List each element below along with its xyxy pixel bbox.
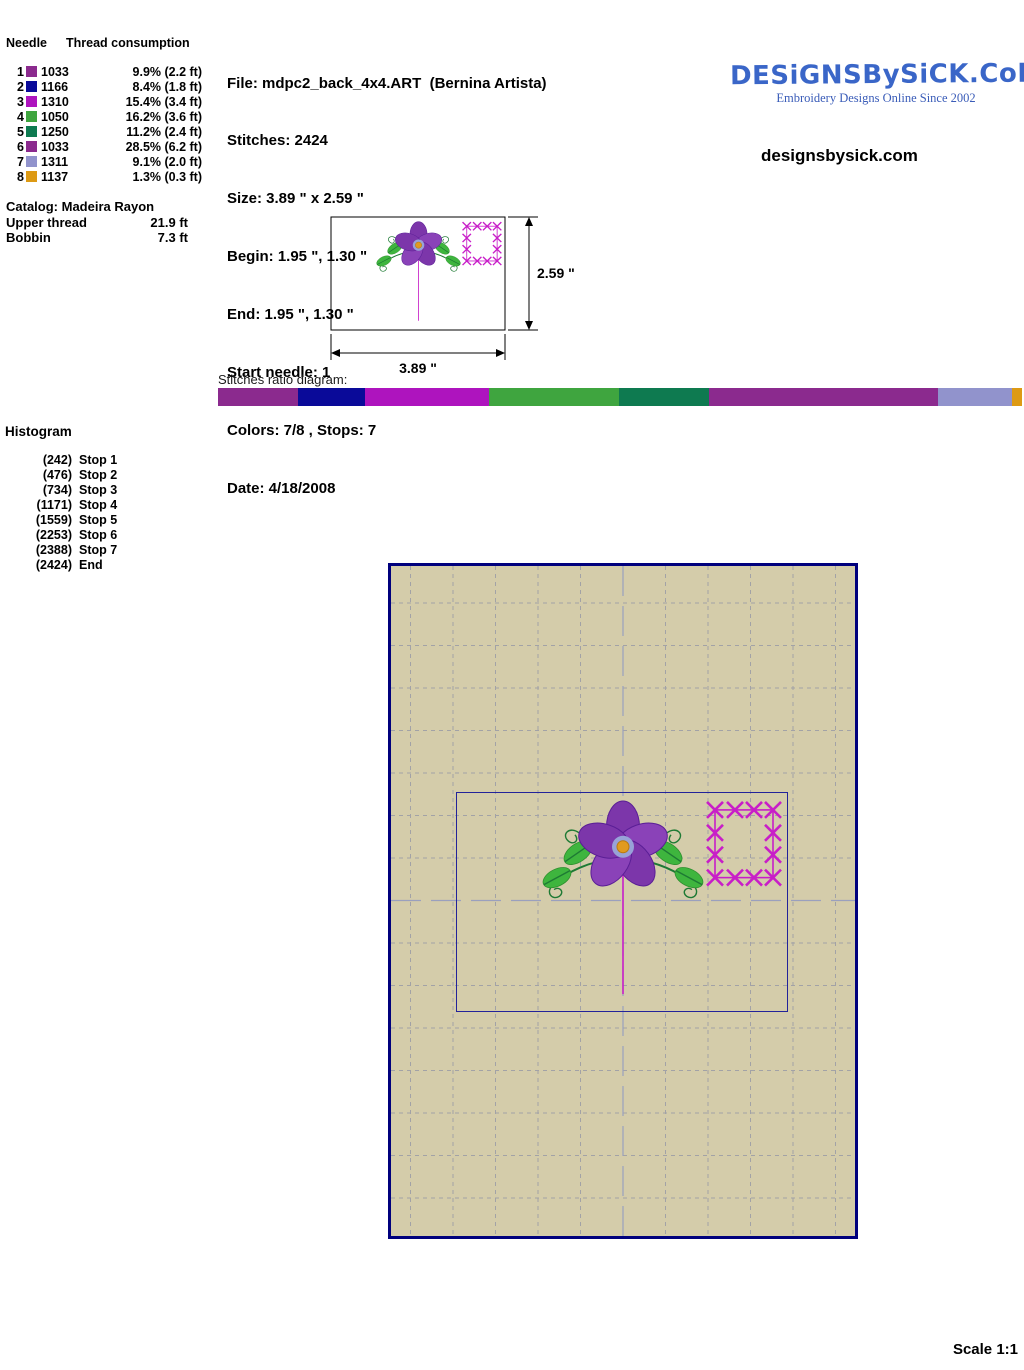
embroidery-design-small <box>375 222 501 321</box>
thread-rows: 1 1033 9.9% (2.2 ft) 2 1166 8.4% (1.8 ft… <box>6 64 202 184</box>
thread-color-swatch <box>26 126 37 137</box>
ratio-segment <box>709 388 938 406</box>
stitch-ratio-label: Stitches ratio diagram: <box>218 372 347 387</box>
histogram-row: (242) Stop 1 <box>18 453 117 468</box>
thread-row: 4 1050 16.2% (3.6 ft) <box>6 109 202 124</box>
thread-code: 1310 <box>41 95 85 109</box>
stop-stitch-count: (734) <box>18 483 72 498</box>
histogram-row: (476) Stop 2 <box>18 468 117 483</box>
histogram-title: Histogram <box>5 424 72 439</box>
thread-color-swatch <box>26 141 37 152</box>
histogram-row: (2253) Stop 6 <box>18 528 117 543</box>
needle-number: 7 <box>6 155 24 169</box>
thread-code: 1250 <box>41 125 85 139</box>
consumption-column-header: Thread consumption <box>66 36 190 50</box>
ratio-segment <box>218 388 298 406</box>
needle-number: 3 <box>6 95 24 109</box>
thread-code: 1166 <box>41 80 85 94</box>
needle-number: 2 <box>6 80 24 94</box>
needle-number: 5 <box>6 125 24 139</box>
scale-label: Scale 1:1 <box>938 1341 1018 1358</box>
colors-stops-line: Colors: 7/8 , Stops: 7 <box>227 421 547 440</box>
stop-stitch-count: (2388) <box>18 543 72 558</box>
stop-stitch-count: (242) <box>18 453 72 468</box>
stop-label: Stop 3 <box>79 483 117 498</box>
thread-row: 6 1033 28.5% (6.2 ft) <box>6 139 202 154</box>
brand-tagline: Embroidery Designs Online Since 2002 <box>730 91 1022 106</box>
hoop-canvas <box>388 563 858 1239</box>
height-dimension <box>508 217 538 330</box>
thread-consumption-panel: Needle Thread consumption 1 1033 9.9% (2… <box>6 36 202 184</box>
bobbin-value: 7.3 ft <box>51 230 188 246</box>
thread-code: 1033 <box>41 65 85 79</box>
stop-label: Stop 7 <box>79 543 117 558</box>
stop-stitch-count: (2424) <box>18 558 72 573</box>
size-line: Size: 3.89 " x 2.59 " <box>227 189 547 208</box>
thread-color-swatch <box>26 111 37 122</box>
ratio-segment <box>1012 388 1022 406</box>
needle-number: 8 <box>6 170 24 184</box>
stop-label: Stop 2 <box>79 468 117 483</box>
upper-thread-label: Upper thread <box>6 215 87 231</box>
thread-usage: 9.1% (2.0 ft) <box>85 155 202 169</box>
thread-color-swatch <box>26 96 37 107</box>
thread-code: 1311 <box>41 155 85 169</box>
stop-stitch-count: (476) <box>18 468 72 483</box>
ratio-segment <box>619 388 709 406</box>
stop-label: End <box>79 558 103 573</box>
needle-number: 4 <box>6 110 24 124</box>
thread-row: 5 1250 11.2% (2.4 ft) <box>6 124 202 139</box>
thread-color-swatch <box>26 156 37 167</box>
width-dimension-label: 3.89 " <box>399 360 437 376</box>
stitch-ratio-bar <box>218 388 1022 406</box>
stop-stitch-count: (2253) <box>18 528 72 543</box>
stop-label: Stop 5 <box>79 513 117 528</box>
thread-usage: 11.2% (2.4 ft) <box>85 125 202 139</box>
embroidery-design-large <box>456 792 788 1012</box>
ratio-segment <box>489 388 619 406</box>
stitch-count-line: Stitches: 2424 <box>227 131 547 150</box>
thread-table-header: Needle Thread consumption <box>6 36 202 50</box>
thread-usage: 16.2% (3.6 ft) <box>85 110 202 124</box>
histogram-row: (734) Stop 3 <box>18 483 117 498</box>
stop-label: Stop 6 <box>79 528 117 543</box>
designsbysick-logo: DESiGNSBySiCK.CoM <box>730 59 1022 92</box>
date-line: Date: 4/18/2008 <box>227 479 547 498</box>
needle-column-header: Needle <box>6 36 66 50</box>
width-dimension <box>331 334 505 360</box>
histogram-row: (1171) Stop 4 <box>18 498 117 513</box>
thread-row: 7 1311 9.1% (2.0 ft) <box>6 154 202 169</box>
needle-number: 1 <box>6 65 24 79</box>
thread-usage: 9.9% (2.2 ft) <box>85 65 202 79</box>
thread-row: 8 1137 1.3% (0.3 ft) <box>6 169 202 184</box>
thread-row: 2 1166 8.4% (1.8 ft) <box>6 79 202 94</box>
thread-color-swatch <box>26 81 37 92</box>
stop-label: Stop 1 <box>79 453 117 468</box>
thread-row: 3 1310 15.4% (3.4 ft) <box>6 94 202 109</box>
thread-usage: 8.4% (1.8 ft) <box>85 80 202 94</box>
histogram-row: (2388) Stop 7 <box>18 543 117 558</box>
catalog-title: Catalog: Madeira Rayon <box>6 199 188 215</box>
thread-code: 1033 <box>41 140 85 154</box>
ratio-segment <box>365 388 489 406</box>
upper-thread-value: 21.9 ft <box>87 215 188 231</box>
stop-label: Stop 4 <box>79 498 117 513</box>
histogram-row: (2424) End <box>18 558 117 573</box>
ratio-segment <box>938 388 1011 406</box>
thread-usage: 28.5% (6.2 ft) <box>85 140 202 154</box>
thread-color-swatch <box>26 66 37 77</box>
thread-code: 1050 <box>41 110 85 124</box>
ratio-segment <box>298 388 366 406</box>
histogram-row: (1559) Stop 5 <box>18 513 117 528</box>
stop-stitch-count: (1171) <box>18 498 72 513</box>
histogram-rows: (242) Stop 1 (476) Stop 2 (734) Stop 3 (… <box>18 453 117 573</box>
thread-row: 1 1033 9.9% (2.2 ft) <box>6 64 202 79</box>
design-preview-figure: 2.59 " 3.89 " <box>325 210 585 380</box>
file-name-line: File: mdpc2_back_4x4.ART (Bernina Artist… <box>227 74 547 93</box>
thread-color-swatch <box>26 171 37 182</box>
needle-number: 6 <box>6 140 24 154</box>
site-url-text: designsbysick.com <box>761 146 918 166</box>
stop-stitch-count: (1559) <box>18 513 72 528</box>
thread-usage: 1.3% (0.3 ft) <box>85 170 202 184</box>
brand-panel: DESiGNSBySiCK.CoM Embroidery Designs Onl… <box>730 60 1022 106</box>
thread-code: 1137 <box>41 170 85 184</box>
bobbin-label: Bobbin <box>6 230 51 246</box>
height-dimension-label: 2.59 " <box>537 265 575 281</box>
catalog-panel: Catalog: Madeira Rayon Upper thread 21.9… <box>6 199 188 246</box>
thread-usage: 15.4% (3.4 ft) <box>85 95 202 109</box>
